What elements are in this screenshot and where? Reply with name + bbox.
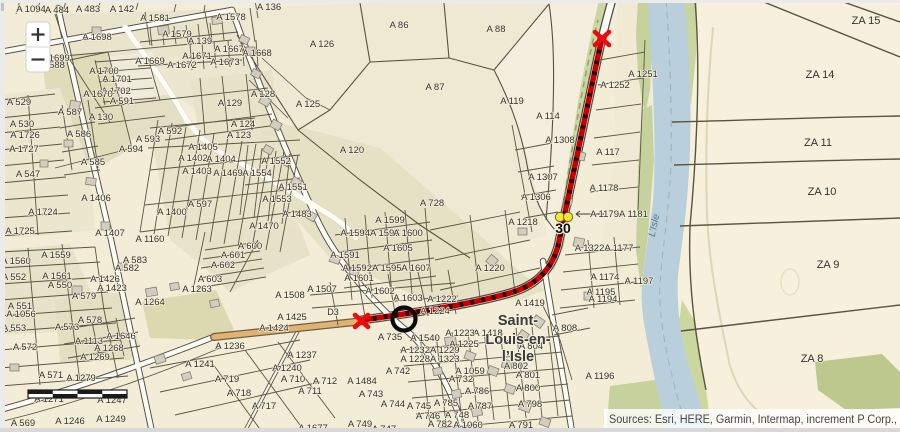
svg-text:ZA 15: ZA 15 [852,15,881,27]
svg-text:A 1540: A 1540 [410,333,440,344]
svg-text:A 1552: A 1552 [261,156,291,167]
svg-text:A 732: A 732 [449,374,473,385]
svg-text:A 1223: A 1223 [445,328,475,339]
svg-text:A 1701: A 1701 [102,74,132,85]
svg-text:A 120: A 120 [340,145,364,156]
svg-text:A 130: A 130 [89,112,113,123]
svg-text:A 1578: A 1578 [216,12,246,23]
svg-text:A 129: A 129 [218,98,242,109]
svg-text:A 1602: A 1602 [365,286,395,297]
svg-text:A 1591: A 1591 [330,250,360,261]
svg-text:A 1483: A 1483 [282,209,312,220]
svg-text:A 586: A 586 [67,129,91,140]
svg-text:A 787: A 787 [468,401,492,412]
svg-text:A 710: A 710 [281,374,305,385]
svg-text:30: 30 [555,220,571,236]
svg-text:A 1554: A 1554 [242,168,272,179]
svg-text:A 735: A 735 [378,332,402,343]
svg-text:ZA 11: ZA 11 [804,137,832,149]
svg-text:A 1698: A 1698 [82,32,112,43]
svg-text:A 1402: A 1402 [178,153,208,164]
svg-text:A 1646: A 1646 [106,331,136,342]
svg-text:A 1174: A 1174 [591,272,620,283]
svg-text:A 552: A 552 [2,272,26,283]
svg-text:A 1306: A 1306 [521,192,551,203]
svg-text:A 136: A 136 [257,2,281,13]
svg-text:Sources: Esri, HERE, Garmin, I: Sources: Esri, HERE, Garmin, Intermap, i… [609,414,897,426]
svg-text:A 87: A 87 [425,82,444,93]
svg-text:A 801: A 801 [516,370,540,381]
svg-text:A 1236: A 1236 [215,341,245,352]
svg-text:A 1406: A 1406 [81,193,111,204]
svg-text:A 571: A 571 [39,370,63,381]
svg-text:A 1094: A 1094 [16,4,46,15]
svg-text:A 1724: A 1724 [28,207,58,218]
svg-text:A 579: A 579 [72,291,96,302]
svg-text:D3: D3 [327,307,339,317]
svg-text:A 592: A 592 [158,126,182,137]
svg-text:A 553: A 553 [2,323,26,334]
svg-text:A 800: A 800 [516,383,540,394]
svg-text:A 1264: A 1264 [135,297,165,308]
svg-text:A 124: A 124 [231,119,255,130]
svg-text:A 1249: A 1249 [96,414,126,425]
svg-text:A 550: A 550 [48,280,72,291]
svg-text:A 597: A 597 [188,199,212,210]
svg-text:A 808: A 808 [553,323,577,334]
svg-text:A 484: A 484 [45,5,69,16]
svg-text:A 1667: A 1667 [214,44,244,55]
svg-text:A 1400: A 1400 [157,207,187,218]
svg-text:A 1419: A 1419 [515,298,545,309]
svg-text:A 125: A 125 [296,99,320,110]
svg-text:A 1160: A 1160 [136,234,165,245]
svg-text:A 1603: A 1603 [393,293,423,304]
svg-text:A 1196: A 1196 [586,371,615,382]
svg-text:A 483: A 483 [76,4,100,15]
svg-text:A 1507: A 1507 [307,284,337,295]
svg-text:A 1263: A 1263 [182,284,212,295]
svg-text:ZA 14: ZA 14 [806,69,835,81]
svg-text:A 1594A 1597: A 1594A 1597 [340,228,399,239]
svg-text:A 1727: A 1727 [9,144,39,155]
svg-text:A 786: A 786 [465,386,489,397]
svg-text:A 547: A 547 [16,169,40,180]
svg-text:A 128: A 128 [251,89,275,100]
svg-text:A 573: A 573 [55,322,79,333]
svg-text:A 1194: A 1194 [589,294,618,305]
svg-text:A 1670: A 1670 [83,89,113,100]
svg-text:Saint-: Saint- [498,313,538,329]
svg-text:A 1056: A 1056 [6,309,36,320]
svg-text:A 1197: A 1197 [625,276,654,287]
svg-text:A 1484: A 1484 [347,376,377,387]
svg-text:A 1551: A 1551 [278,182,308,193]
svg-text:A 86: A 86 [389,20,408,31]
svg-text:A 1424: A 1424 [259,323,289,334]
svg-text:A 1218: A 1218 [508,217,538,228]
svg-text:A 1407: A 1407 [95,228,125,239]
svg-text:A 1251: A 1251 [628,69,658,80]
svg-text:Louis-en-: Louis-en- [485,332,550,348]
svg-text:A 718: A 718 [227,388,251,399]
svg-text:A 530: A 530 [10,119,34,130]
svg-text:A 1600: A 1600 [393,228,423,239]
svg-text:A 1220: A 1220 [475,263,505,274]
svg-text:A 1423: A 1423 [97,283,127,294]
svg-text:A 1322A 1177: A 1322A 1177 [575,243,633,254]
svg-text:A 1308: A 1308 [545,135,575,146]
svg-text:A 529: A 529 [7,97,31,108]
svg-text:l’Isle: l’Isle [502,349,534,365]
svg-text:A 711: A 711 [298,386,322,397]
svg-text:A 1669: A 1669 [135,56,165,67]
svg-text:A 602: A 602 [211,260,235,271]
svg-text:A 578: A 578 [78,315,102,326]
svg-text:A 1553: A 1553 [262,194,292,205]
svg-text:A 1178: A 1178 [590,183,619,194]
svg-text:A 1559: A 1559 [41,250,71,261]
svg-text:A 1607: A 1607 [401,263,431,274]
svg-text:A 1252: A 1252 [600,80,630,91]
svg-text:A 126: A 126 [310,39,334,50]
svg-text:A 1241: A 1241 [185,359,215,370]
svg-text:A 785: A 785 [434,398,458,409]
svg-text:A 1237: A 1237 [287,350,317,361]
svg-text:A 123: A 123 [227,130,251,141]
svg-text:A 114: A 114 [536,111,560,122]
svg-text:A 142: A 142 [110,4,134,15]
svg-text:A 1581: A 1581 [140,13,170,24]
svg-text:A 1269: A 1269 [80,352,110,363]
svg-text:A 1470: A 1470 [249,221,279,232]
svg-text:A 585: A 585 [81,157,105,168]
svg-text:A 1425: A 1425 [277,312,307,323]
svg-text:A 1240: A 1240 [272,363,302,374]
svg-text:A 139: A 139 [188,36,212,47]
svg-text:A 1179A 1181: A 1179A 1181 [590,209,648,220]
svg-text:A 1725: A 1725 [5,226,35,237]
svg-text:A 742: A 742 [386,366,410,377]
svg-text:A 1228A 1323: A 1228A 1323 [400,354,459,365]
svg-text:A 1307: A 1307 [528,172,558,183]
svg-text:A 569: A 569 [11,418,35,429]
svg-text:A 1403: A 1403 [182,166,212,177]
svg-text:A 88: A 88 [486,24,505,35]
svg-text:A 1668: A 1668 [242,48,272,59]
svg-text:A 1605: A 1605 [383,243,413,254]
svg-text:A 117: A 117 [596,147,620,158]
svg-text:ZA 9: ZA 9 [817,259,840,271]
svg-text:A 582: A 582 [115,263,139,274]
svg-text:A 728: A 728 [420,198,444,209]
svg-text:A 1405: A 1405 [188,142,218,153]
svg-text:A 1672: A 1672 [167,60,197,71]
svg-text:A 1246: A 1246 [55,416,85,427]
svg-text:A 1508: A 1508 [275,290,305,301]
svg-text:A 587: A 587 [58,107,82,118]
svg-text:A 572: A 572 [13,342,37,353]
svg-text:A 1599: A 1599 [375,215,405,226]
svg-text:A 744: A 744 [381,399,405,410]
svg-text:A 119: A 119 [500,96,524,107]
svg-text:A 1279: A 1279 [66,373,96,384]
svg-text:A 1601: A 1601 [344,273,374,284]
svg-text:A 591: A 591 [110,96,134,107]
svg-text:A 743: A 743 [359,389,383,400]
svg-text:A 1404: A 1404 [206,154,236,165]
svg-text:A 1560: A 1560 [1,256,31,267]
svg-text:A 717: A 717 [252,401,276,412]
svg-text:ZA 8: ZA 8 [801,353,824,365]
svg-text:A 1224: A 1224 [420,306,450,317]
svg-text:A 798: A 798 [518,399,542,410]
svg-text:ZA 10: ZA 10 [808,186,837,198]
svg-text:A 1469: A 1469 [213,168,243,179]
svg-text:A 594: A 594 [119,144,143,155]
svg-text:A 1222: A 1222 [427,294,457,305]
svg-text:A 1673: A 1673 [210,57,240,68]
svg-text:588: 588 [49,60,65,71]
svg-text:A 1726: A 1726 [10,130,40,141]
svg-text:A 719: A 719 [215,374,239,385]
